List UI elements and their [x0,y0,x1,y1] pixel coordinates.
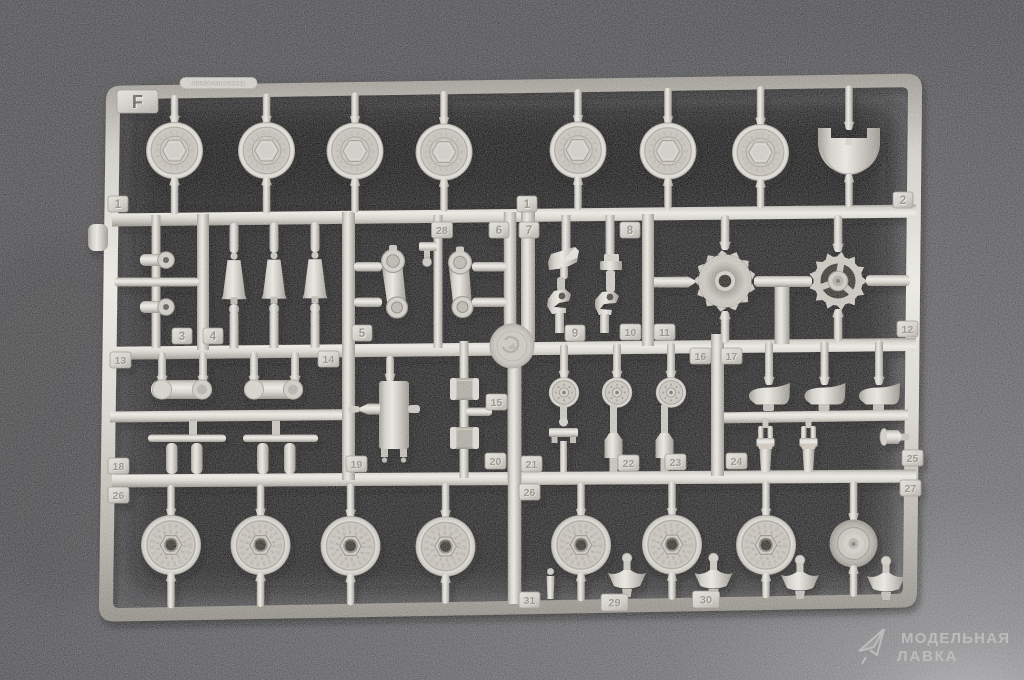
svg-text:ЛАВКА: ЛАВКА [897,648,958,665]
svg-text:МОДЕЛЬНАЯ: МОДЕЛЬНАЯ [901,630,1010,647]
